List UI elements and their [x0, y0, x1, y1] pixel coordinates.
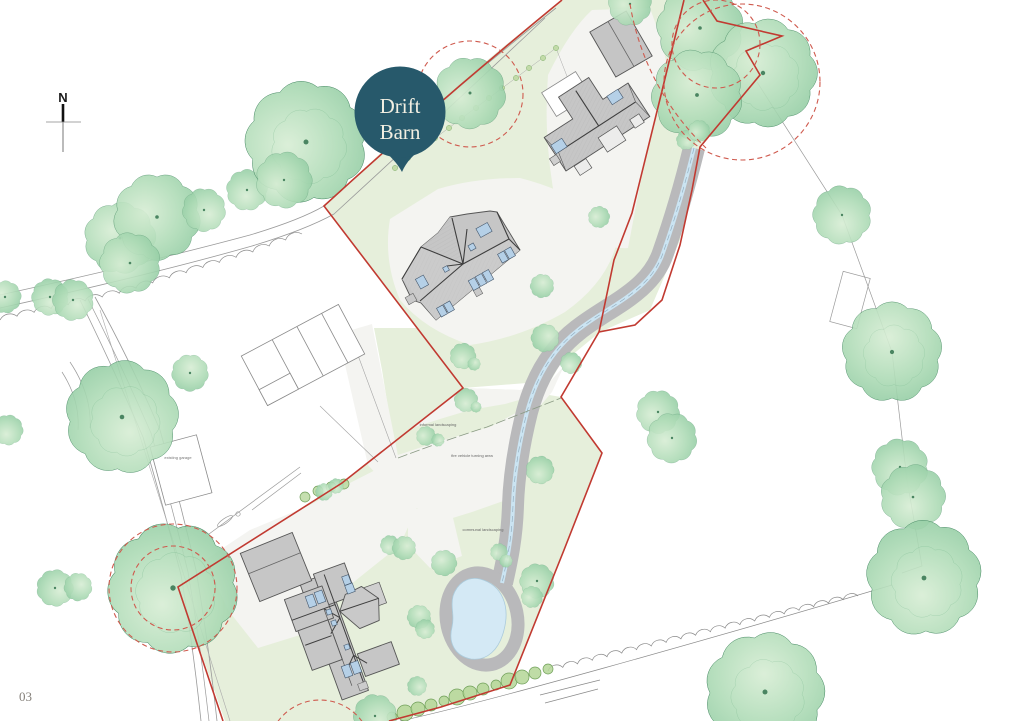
svg-text:informal landscaping: informal landscaping	[420, 422, 457, 427]
svg-text:03: 03	[19, 689, 32, 704]
svg-text:N: N	[58, 90, 67, 105]
svg-text:Drift: Drift	[380, 94, 421, 118]
svg-text:Barn: Barn	[380, 120, 421, 144]
svg-text:fire vehicle turning area: fire vehicle turning area	[451, 453, 493, 458]
svg-text:communal landscaping: communal landscaping	[463, 527, 504, 532]
svg-text:existing garage: existing garage	[164, 455, 192, 460]
